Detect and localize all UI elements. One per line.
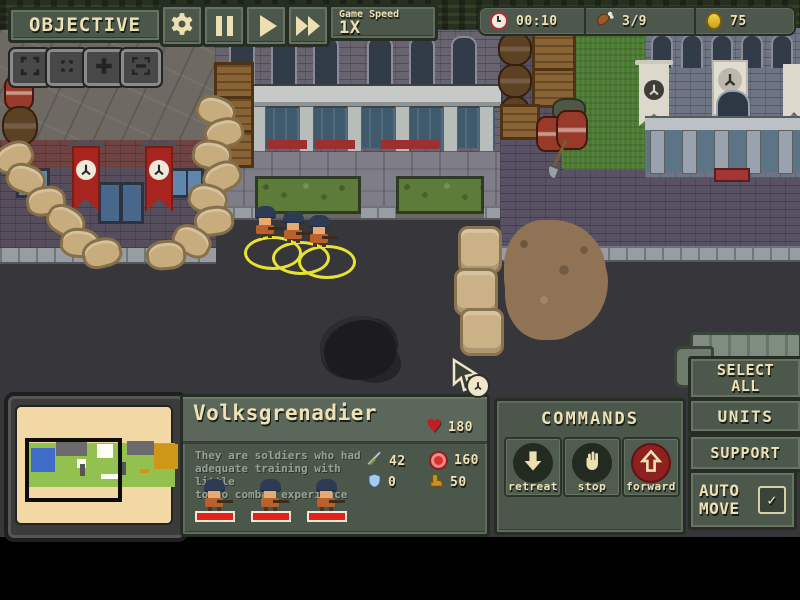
units-button[interactable]: UNITS [688,398,800,434]
crate [532,32,576,72]
health-stat: ♥ 180 [426,419,473,435]
legs [259,234,272,238]
play-button[interactable] [244,4,288,47]
column [778,130,793,174]
timer-value: 00:10 [516,14,558,29]
health-bar [251,511,291,522]
face [208,491,220,498]
selection-circle [298,245,356,279]
forward-icon-bg [631,443,671,483]
zoom-out-button[interactable] [121,49,161,86]
coins-cell: 75 [696,8,794,34]
sandbag-barricade [458,226,502,274]
faction-emblem-icon [718,68,742,92]
helmet [204,479,225,490]
red-sill [267,140,307,149]
minimap[interactable] [4,392,188,542]
mouse-cursor [450,358,484,398]
rations-value: 3/9 [622,14,647,29]
helmet [260,479,281,490]
expand-icon [20,56,40,80]
support-label: SUPPORT [710,444,780,462]
coins-value: 75 [730,14,747,29]
clock-icon [490,12,508,30]
sword-icon [367,451,383,471]
window [409,36,435,90]
fast-forward-icon [296,16,320,36]
unit-name: Volksgrenadier [193,401,377,425]
red-sill [381,140,439,149]
auto-move-toggle[interactable]: AUTO MOVE ✓ [688,470,797,530]
game-speed-value: 1X [339,20,427,37]
zoom-out-icon [131,56,151,80]
government-building [645,28,800,178]
health-bar [307,511,347,522]
sandbag [145,238,187,271]
cost-value: 160 [454,453,479,468]
faction-emblem-icon [149,160,169,180]
forward-button[interactable]: forward [622,437,680,497]
zoom-in-button[interactable] [84,49,124,86]
wooden-barrel [498,64,532,98]
armor-value: 0 [388,475,396,490]
column [479,106,494,152]
hedge-planter [396,176,484,214]
speed-value: 50 [450,475,467,490]
speed-stat: 50 [429,473,467,492]
units-label: UNITS [718,407,774,426]
armor-stat: 0 [367,473,396,492]
minimap-building-gray [127,441,154,455]
select-all-label: SELECT ALL [717,362,774,394]
sandbag-barricade [460,308,504,356]
shield-icon [367,473,382,492]
face [287,223,299,230]
health-bar [195,511,235,522]
window [451,36,477,90]
fast-forward-button[interactable] [286,4,330,47]
face [264,491,276,498]
cursor-command-badge [466,374,490,398]
squad-soldier-thumb[interactable] [309,479,345,511]
legs [313,243,326,247]
helmet [255,206,276,217]
helmet [283,211,304,222]
up-arrow-icon [639,449,663,477]
red-doormat [714,168,750,182]
support-button[interactable]: SUPPORT [688,434,800,472]
checkmark-icon: ✓ [767,491,777,509]
center-icon [57,56,77,80]
rations-cell: 3/9 [586,8,694,34]
boot-icon [429,473,444,492]
status-bar: 00:10 3/9 75 [478,6,796,36]
stop-label: stop [565,480,619,493]
column [443,106,458,152]
face [320,491,332,498]
face [313,227,325,234]
portico-beam [243,84,503,108]
shovel-icon [544,136,572,182]
crate [214,62,254,100]
red-sill [315,140,355,149]
faction-emblem-icon [644,80,664,100]
health-value: 180 [448,420,473,435]
crate [500,104,540,140]
game-speed-display: Game Speed 1X [328,4,438,41]
window [681,34,703,68]
objective-button[interactable]: OBJECTIVE [8,7,162,43]
arcade-building [215,30,500,170]
dirt-patch [504,220,606,328]
helmet [309,215,330,226]
minimap-paper [15,405,173,525]
minimap-viewport[interactable] [25,438,122,502]
column [650,130,665,174]
pause-button[interactable] [202,4,246,47]
window [367,36,393,90]
rifle [329,500,345,503]
door [98,182,144,224]
retreat-icon-bg [513,443,553,483]
window [771,34,793,68]
retreat-button[interactable]: retreat [504,437,562,497]
squad-soldier-thumb[interactable] [253,479,289,511]
minimap-building-orange [154,444,178,469]
auto-move-label: AUTO MOVE [699,482,740,518]
column [682,130,697,174]
attack-value: 42 [389,454,406,469]
stop-icon-bg [572,443,612,483]
play-icon [260,15,277,37]
down-arrow-icon [521,449,545,477]
minimap-orange-dot [140,469,149,473]
hand-icon [580,449,604,477]
banner [72,146,100,212]
stop-button[interactable]: stop [563,437,621,497]
face [259,218,271,225]
banner [145,146,173,212]
roundel-icon [429,451,448,470]
game-screen: OBJECTIVE Game Speed 1X 00:10 [0,0,800,600]
map-center-button[interactable] [47,49,87,86]
drumstick-icon [596,10,614,32]
squad-soldier-thumb[interactable] [197,479,233,511]
map-expand-button[interactable] [10,49,50,86]
cost-stat: 160 [429,451,479,470]
gear-icon [169,11,195,41]
rifle [217,500,233,503]
unit-soldier[interactable] [302,215,338,247]
rifle [322,236,338,239]
legs [287,239,300,243]
unit-panel-header: Volksgrenadier ♥ 180 [183,397,487,444]
pause-icon [216,16,233,36]
forward-label: forward [624,480,678,493]
auto-move-checkbox[interactable]: ✓ [758,486,786,514]
settings-button[interactable] [160,4,204,47]
objective-label: OBJECTIVE [29,14,141,36]
helmet [316,479,337,490]
shell-crater [320,316,396,380]
faction-emblem-icon [76,160,96,180]
commands-panel: COMMANDS retreat stop forward [494,398,686,535]
coin-icon [706,12,722,30]
heart-icon: ♥ [426,419,442,435]
zoom-in-icon [94,56,114,80]
rifle [273,500,289,503]
retreat-label: retreat [506,480,560,493]
attack-stat: 42 [367,451,406,471]
wooden-barrel [498,32,532,66]
unit-info-panel: Volksgrenadier ♥ 180 They are soldiers w… [180,394,490,537]
timer-cell: 00:10 [480,8,584,34]
select-all-button[interactable]: SELECT ALL [688,356,800,400]
commands-title: COMMANDS [497,409,683,429]
